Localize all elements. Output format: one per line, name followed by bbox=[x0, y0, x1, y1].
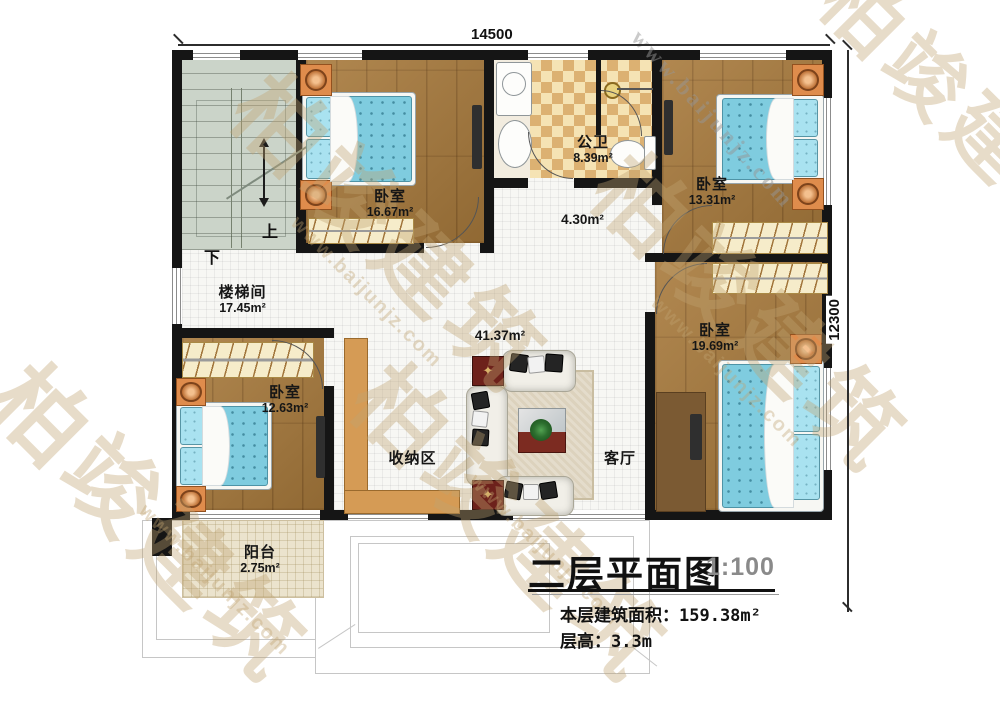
room-name: 公卫 bbox=[548, 134, 638, 151]
floor-area-label: 本层建筑面积： bbox=[560, 606, 679, 625]
room-area: 41.37m² bbox=[460, 328, 540, 344]
window bbox=[193, 50, 240, 60]
stairs-up-label: 上 bbox=[262, 218, 278, 242]
shower-arm bbox=[617, 88, 653, 90]
wall bbox=[172, 328, 334, 338]
stair-arrow-down-icon bbox=[259, 198, 269, 207]
room-area: 16.67m² bbox=[340, 205, 440, 219]
window bbox=[528, 50, 588, 60]
tv-panel bbox=[472, 105, 482, 169]
room-area: 2.75m² bbox=[215, 561, 305, 575]
room-name: 卧室 bbox=[340, 188, 440, 205]
window bbox=[700, 50, 786, 60]
plant bbox=[530, 419, 552, 441]
room-label-storage: 收纳区 bbox=[370, 450, 455, 467]
living-room-area-label: 41.37m² bbox=[460, 328, 540, 344]
floor-area-value: 159.38m² bbox=[679, 606, 761, 626]
room-name: 卧室 bbox=[675, 322, 755, 339]
room-label-bedroom-top-left: 卧室 16.67m² bbox=[340, 188, 440, 220]
room-area: 19.69m² bbox=[675, 339, 755, 353]
room-label-hallway: 4.30m² bbox=[540, 212, 625, 228]
wall bbox=[172, 50, 182, 268]
tv-panel bbox=[316, 416, 325, 478]
blanket-fold bbox=[202, 406, 230, 486]
floor-height-label: 层高： bbox=[560, 632, 611, 651]
room-area: 13.31m² bbox=[672, 193, 752, 207]
floor-area-row: 本层建筑面积：159.38m² bbox=[560, 601, 761, 626]
room-label-stairwell: 楼梯间 17.45m² bbox=[195, 284, 290, 316]
pillow bbox=[792, 139, 818, 177]
room-area: 12.63m² bbox=[235, 401, 335, 415]
stairs-down-label: 下 bbox=[204, 244, 220, 268]
room-label-bedroom-bottom-left: 卧室 12.63m² bbox=[235, 384, 335, 416]
wall bbox=[494, 178, 528, 188]
sink bbox=[498, 120, 532, 168]
room-name: 收纳区 bbox=[370, 450, 455, 467]
title-underline bbox=[528, 589, 775, 592]
room-name: 客厅 bbox=[590, 450, 650, 467]
room-area: 4.30m² bbox=[540, 212, 625, 228]
room-name: 卧室 bbox=[672, 176, 752, 193]
dimension-line-right bbox=[847, 50, 849, 612]
room-area: 17.45m² bbox=[195, 301, 290, 315]
wall bbox=[484, 50, 494, 253]
room-label-bedroom-top-right: 卧室 13.31m² bbox=[672, 176, 752, 208]
floor-plan-canvas: 上 下 bbox=[0, 0, 1000, 706]
floor-height-value: 3.3m bbox=[611, 632, 652, 652]
room-name: 卧室 bbox=[235, 384, 335, 401]
room-label-bathroom: 公卫 8.39m² bbox=[548, 134, 638, 166]
washing-machine-drum bbox=[502, 72, 526, 96]
dimension-top-value: 14500 bbox=[468, 26, 516, 43]
pillow bbox=[180, 407, 204, 445]
nightstand bbox=[176, 378, 206, 406]
dimension-tick bbox=[173, 34, 183, 44]
room-label-living-room: 客厅 bbox=[590, 450, 650, 467]
room-label-bedroom-right: 卧室 19.69m² bbox=[675, 322, 755, 354]
nightstand bbox=[792, 64, 824, 96]
wall bbox=[645, 312, 655, 520]
room-label-balcony: 阳台 2.75m² bbox=[215, 544, 305, 576]
wall bbox=[362, 50, 528, 60]
room-name: 楼梯间 bbox=[195, 284, 290, 301]
room-area: 8.39m² bbox=[548, 151, 638, 165]
dimension-line-top bbox=[178, 44, 830, 46]
pillow bbox=[792, 99, 818, 137]
dimension-right-value: 12300 bbox=[826, 296, 843, 344]
room-name: 阳台 bbox=[215, 544, 305, 561]
floor-height-row: 层高：3.3m bbox=[560, 627, 652, 652]
window bbox=[172, 268, 182, 324]
tv-panel bbox=[690, 414, 702, 460]
title-underline-shadow bbox=[532, 594, 779, 595]
plan-scale: 1:100 bbox=[706, 553, 775, 582]
